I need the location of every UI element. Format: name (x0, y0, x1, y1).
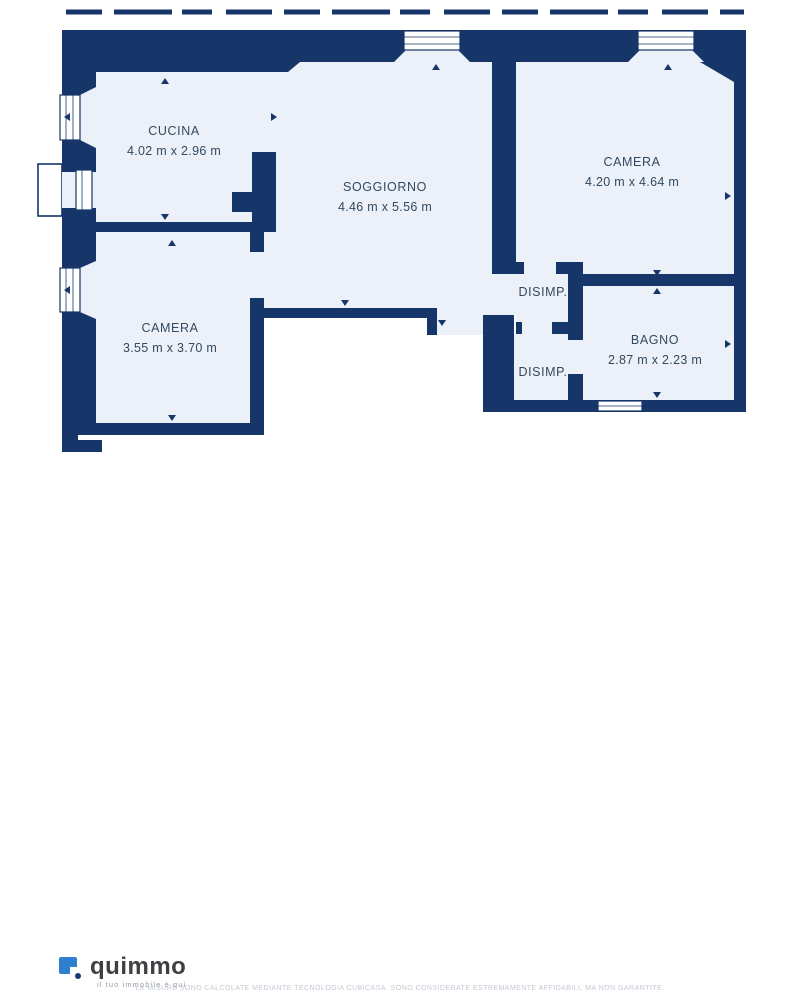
door-camera2 (250, 252, 264, 298)
wall-cucina-soggiorno (252, 152, 276, 232)
wall-stub-bottomleft-h (62, 440, 102, 452)
wall-bottom-camera2 (62, 423, 264, 435)
dims-soggiorno: 4.46 m x 5.56 m (338, 200, 432, 214)
wall-cucina-step (232, 192, 252, 212)
label-disimp-2: DISIMP. (518, 365, 567, 379)
dims-camera-1: 4.20 m x 4.64 m (585, 175, 679, 189)
window-icon-top-soggiorno (404, 31, 460, 50)
dims-camera-2: 3.55 m x 3.70 m (123, 341, 217, 355)
splay-window-cucina (80, 87, 96, 148)
wall-disimp2-left (483, 315, 514, 412)
passage-cucina-soggiorno (252, 72, 276, 152)
wall-disimp-bagno-a (568, 274, 583, 340)
label-bagno: BAGNO (631, 333, 679, 347)
quimmo-logo: quimmo il tuo immobile è qui (57, 955, 186, 989)
door-disimp1-disimp2 (522, 322, 552, 334)
wall-camera1-bottom-a (516, 262, 524, 274)
wall-soggiorno-camera1 (492, 62, 516, 274)
wall-disimp-bagno-b (568, 374, 583, 400)
window-icon-balcony-door (76, 170, 92, 210)
disclaimer-text: LE MISURE SONO CALCOLATE MEDIANTE TECNOL… (0, 985, 800, 992)
wall-cucina-camera (62, 222, 252, 232)
balcony-landing (38, 164, 62, 216)
wall-right (734, 30, 746, 412)
splay-window-camera2 (80, 261, 96, 319)
wall-soggiorno-step (427, 308, 437, 335)
logo-dot (75, 973, 81, 979)
wall-disimp-divider-a (516, 322, 522, 334)
door-camera1-disimp1 (524, 262, 556, 274)
label-camera-2: CAMERA (141, 321, 198, 335)
splay-window-camera1 (628, 50, 704, 62)
window-icon-top-camera1 (638, 31, 694, 50)
room-soggiorno (264, 62, 492, 335)
floorplan: CUCINA 4.02 m x 2.96 m SOGGIORNO 4.46 m … (0, 0, 800, 533)
wall-disimp-divider-b (552, 322, 568, 334)
label-disimp-1: DISIMP. (518, 285, 567, 299)
splay-window-soggiorno (394, 50, 470, 62)
floorplan-svg: CUCINA 4.02 m x 2.96 m SOGGIORNO 4.46 m … (0, 0, 800, 533)
dims-bagno: 2.87 m x 2.23 m (608, 353, 702, 367)
wall-camera2-right-b (250, 298, 264, 425)
wall-left-4 (62, 232, 96, 268)
quimmo-logo-icon (57, 955, 83, 983)
wall-camera1-bottom-b (556, 262, 583, 274)
footer: quimmo il tuo immobile è qui LE MISURE S… (0, 473, 800, 533)
brand-name: quimmo (90, 955, 186, 979)
label-soggiorno: SOGGIORNO (343, 180, 427, 194)
wall-left-5 (62, 312, 96, 425)
wall-camera1-bagno (583, 274, 734, 286)
wall-camera2-right-a (250, 232, 264, 252)
wall-top-kitchen-thick (96, 62, 288, 72)
room-fills (96, 62, 734, 423)
door-soggiorno-disimp1 (492, 274, 516, 315)
label-cucina: CUCINA (148, 124, 200, 138)
dims-cucina: 4.02 m x 2.96 m (127, 144, 221, 158)
wall-soggiorno-bottom (264, 308, 427, 318)
label-camera-1: CAMERA (603, 155, 660, 169)
door-disimp2-bagno (568, 340, 583, 374)
